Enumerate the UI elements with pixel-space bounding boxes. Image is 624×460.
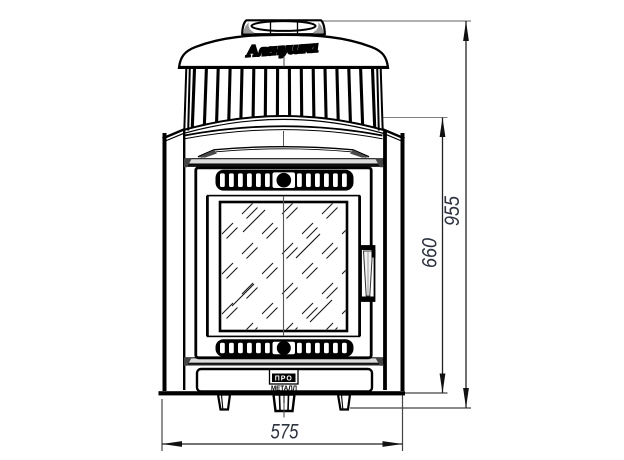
svg-text:955: 955: [441, 196, 464, 226]
svg-text:660: 660: [419, 238, 442, 268]
svg-text:ПРО: ПРО: [275, 376, 293, 383]
svg-text:МЕТАЛЛ: МЕТАЛЛ: [271, 384, 297, 393]
svg-text:575: 575: [271, 421, 299, 444]
